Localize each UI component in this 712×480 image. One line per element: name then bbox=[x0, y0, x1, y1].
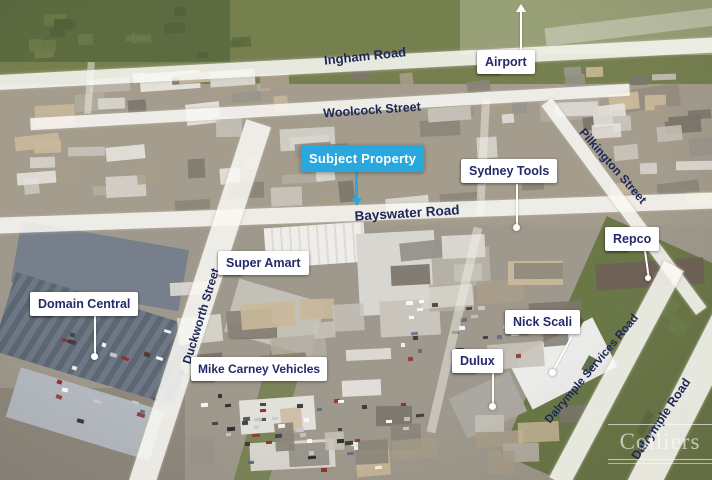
leader-dot-domain-central bbox=[91, 353, 98, 360]
photo-texture-patch bbox=[229, 39, 240, 47]
photo-texture-patch bbox=[332, 303, 365, 332]
photo-texture-patch bbox=[143, 352, 150, 358]
photo-texture-patch bbox=[654, 105, 669, 123]
photo-texture-patch bbox=[97, 98, 125, 110]
photo-texture-patch bbox=[126, 34, 146, 42]
photo-texture-patch bbox=[413, 336, 418, 340]
photo-texture-patch bbox=[390, 264, 430, 286]
photo-texture-patch bbox=[271, 186, 303, 206]
photo-texture-patch bbox=[374, 389, 430, 422]
poi-sydney-tools-label: Sydney Tools bbox=[461, 159, 557, 183]
photo-texture-patch bbox=[307, 439, 312, 443]
photo-texture-patch bbox=[665, 114, 702, 134]
photo-texture-patch bbox=[488, 451, 515, 474]
photo-texture-patch bbox=[254, 417, 262, 421]
photo-texture-patch bbox=[164, 23, 186, 34]
photo-texture-patch bbox=[613, 144, 638, 162]
photo-texture-patch bbox=[418, 349, 422, 353]
photo-texture-patch bbox=[15, 133, 60, 151]
leader-dot-dulux bbox=[489, 403, 496, 410]
photo-texture-patch bbox=[67, 339, 75, 345]
photo-texture-patch bbox=[375, 466, 382, 470]
photo-texture-patch bbox=[249, 439, 335, 471]
photo-texture-patch bbox=[416, 414, 424, 418]
photo-texture-patch bbox=[300, 298, 334, 319]
photo-texture-patch bbox=[156, 357, 164, 362]
photo-texture-patch bbox=[140, 409, 146, 414]
poi-super-amart-label: Super Amart bbox=[218, 251, 309, 275]
photo-texture-patch bbox=[254, 425, 259, 429]
photo-texture-patch bbox=[77, 419, 84, 424]
leader-line-domain-central bbox=[94, 316, 96, 356]
photo-texture-patch bbox=[39, 39, 57, 52]
photo-texture-patch bbox=[243, 417, 250, 422]
photo-texture-patch bbox=[338, 428, 342, 431]
photo-texture-patch bbox=[69, 333, 75, 338]
photo-texture-patch bbox=[189, 437, 213, 465]
photo-texture-patch bbox=[225, 309, 316, 480]
photo-texture-patch bbox=[23, 177, 40, 194]
road-band-minor-3 bbox=[426, 227, 482, 434]
photo-texture-patch bbox=[502, 443, 539, 463]
photo-texture-patch bbox=[257, 82, 271, 92]
photo-texture-patch bbox=[639, 163, 656, 175]
photo-texture-patch bbox=[564, 66, 581, 75]
photo-texture-patch bbox=[514, 263, 563, 280]
leader-line-dulux bbox=[492, 373, 494, 405]
photo-texture-patch bbox=[417, 307, 423, 311]
photo-texture-patch bbox=[188, 159, 206, 179]
photo-texture-patch bbox=[56, 379, 62, 384]
photo-texture-patch bbox=[471, 315, 478, 319]
photo-texture-patch bbox=[687, 109, 710, 120]
colliers-logo-text: Colliers bbox=[620, 429, 701, 455]
photo-texture-patch bbox=[483, 336, 488, 339]
photo-texture-patch bbox=[68, 146, 105, 156]
photo-texture-patch bbox=[245, 442, 250, 446]
photo-texture-patch bbox=[645, 94, 667, 110]
photo-texture-patch bbox=[308, 456, 316, 460]
photo-texture-patch bbox=[434, 107, 473, 118]
photo-texture-patch bbox=[197, 51, 208, 58]
photo-texture-patch bbox=[406, 301, 414, 305]
photo-texture-patch bbox=[516, 354, 521, 358]
photo-texture-patch bbox=[121, 356, 130, 362]
photo-texture-patch bbox=[224, 279, 326, 357]
photo-texture-patch bbox=[347, 451, 355, 455]
photo-texture-patch bbox=[200, 403, 207, 407]
photo-texture-patch bbox=[689, 135, 712, 156]
photo-texture-patch bbox=[110, 352, 118, 358]
photo-texture-patch bbox=[419, 300, 425, 304]
photo-texture-patch bbox=[50, 27, 65, 37]
photo-texture-patch bbox=[226, 432, 232, 436]
photo-texture-patch bbox=[30, 157, 55, 168]
photo-texture-patch bbox=[401, 403, 406, 406]
photo-texture-patch bbox=[174, 7, 186, 17]
photo-texture-patch bbox=[132, 400, 139, 405]
photo-texture-patch bbox=[300, 433, 306, 438]
photo-texture-patch bbox=[259, 418, 267, 422]
poi-repco-label: Repco bbox=[605, 227, 659, 251]
photo-texture-patch bbox=[362, 404, 367, 408]
photo-texture-patch bbox=[309, 451, 314, 455]
photo-texture-patch bbox=[154, 342, 160, 347]
photo-texture-patch bbox=[337, 439, 344, 443]
photo-texture-patch bbox=[71, 365, 76, 370]
photo-texture-patch bbox=[33, 139, 61, 153]
photo-texture-patch bbox=[304, 418, 309, 422]
photo-texture-patch bbox=[252, 434, 260, 438]
photo-texture-patch bbox=[338, 400, 344, 403]
photo-texture-patch bbox=[321, 468, 327, 472]
photo-texture-patch bbox=[399, 72, 413, 86]
photo-texture-patch bbox=[55, 394, 62, 400]
photo-texture-patch bbox=[137, 165, 160, 184]
photo-texture-patch bbox=[240, 301, 296, 330]
photo-texture-patch bbox=[630, 76, 647, 85]
photo-texture-patch bbox=[175, 199, 210, 211]
photo-texture-patch bbox=[62, 338, 70, 343]
photo-texture-patch bbox=[232, 91, 261, 103]
photo-texture-patch bbox=[591, 103, 626, 128]
poi-dulux-label: Dulux bbox=[452, 349, 503, 373]
photo-texture-patch bbox=[376, 406, 412, 426]
photo-texture-patch bbox=[0, 0, 230, 62]
photo-texture-patch bbox=[346, 348, 391, 361]
leader-dot-nick-scali bbox=[549, 369, 556, 376]
photo-texture-patch bbox=[247, 461, 254, 465]
photo-texture-patch bbox=[401, 343, 405, 347]
photo-texture-patch bbox=[163, 329, 171, 334]
photo-texture-patch bbox=[420, 119, 461, 137]
photo-texture-patch bbox=[260, 403, 267, 406]
photo-texture-patch bbox=[497, 335, 502, 339]
photo-texture-patch bbox=[225, 404, 232, 408]
photo-texture-patch bbox=[143, 352, 150, 358]
photo-texture-patch bbox=[210, 86, 241, 97]
photo-texture-patch bbox=[409, 316, 414, 320]
photo-texture-patch bbox=[17, 170, 57, 185]
photo-texture-patch bbox=[411, 332, 418, 336]
photo-texture-patch bbox=[29, 39, 43, 52]
photo-texture-patch bbox=[391, 438, 437, 461]
photo-texture-patch bbox=[501, 114, 514, 124]
poi-airport-label: Airport bbox=[477, 50, 535, 74]
leader-line-nick-scali bbox=[552, 334, 573, 372]
photo-texture-patch bbox=[136, 412, 145, 418]
photo-texture-patch bbox=[334, 398, 340, 402]
photo-texture-patch bbox=[676, 161, 712, 170]
photo-texture-patch bbox=[101, 343, 106, 348]
photo-texture-patch bbox=[385, 420, 391, 423]
photo-texture-patch bbox=[355, 439, 360, 443]
photo-texture-patch bbox=[656, 125, 683, 142]
subject-property-badge: Subject Property bbox=[301, 145, 424, 172]
photo-texture-patch bbox=[404, 416, 410, 420]
photo-texture-patch bbox=[475, 415, 504, 432]
aerial-map: Ingham Road Woolcock Street Bayswater Ro… bbox=[0, 0, 712, 480]
photo-texture-patch bbox=[354, 440, 388, 465]
photo-texture-patch bbox=[105, 144, 146, 162]
photo-texture-patch bbox=[266, 441, 272, 444]
photo-texture-patch bbox=[351, 442, 358, 446]
photo-texture-patch bbox=[379, 298, 441, 337]
photo-texture-patch bbox=[667, 315, 690, 338]
photo-texture-patch bbox=[613, 116, 632, 132]
subject-property-arrowhead bbox=[352, 198, 362, 206]
photo-texture-patch bbox=[297, 404, 303, 408]
photo-texture-patch bbox=[256, 418, 260, 421]
photo-texture-patch bbox=[476, 278, 524, 303]
poi-domain-central-label: Domain Central bbox=[30, 292, 138, 316]
photo-texture-patch bbox=[478, 305, 485, 310]
photo-texture-patch bbox=[78, 33, 93, 44]
road-band-minor-1 bbox=[476, 100, 490, 215]
photo-texture-patch bbox=[54, 18, 73, 30]
photo-texture-patch bbox=[355, 448, 391, 476]
leader-dot-repco bbox=[645, 275, 651, 281]
photo-texture-patch bbox=[62, 20, 76, 28]
photo-texture-patch bbox=[260, 408, 267, 412]
photo-texture-patch bbox=[271, 417, 277, 421]
photo-texture-patch bbox=[218, 393, 223, 397]
photo-texture-patch bbox=[449, 371, 527, 439]
photo-texture-patch bbox=[131, 32, 151, 45]
photo-texture-patch bbox=[274, 422, 295, 451]
photo-texture-patch bbox=[356, 230, 438, 316]
photo-texture-patch bbox=[345, 441, 353, 445]
photo-texture-patch bbox=[476, 431, 524, 449]
poi-mike-carney-vehicles-label: Mike Carney Vehicles bbox=[191, 357, 327, 381]
photo-texture-patch bbox=[275, 434, 282, 438]
photo-texture-patch bbox=[239, 395, 316, 434]
photo-texture-patch bbox=[93, 186, 108, 196]
photo-texture-patch bbox=[152, 50, 168, 62]
photo-texture-patch bbox=[39, 165, 78, 184]
poi-nick-scali-label: Nick Scali bbox=[505, 310, 580, 334]
photo-texture-patch bbox=[33, 48, 54, 58]
photo-texture-patch bbox=[296, 427, 304, 431]
photo-texture-patch bbox=[93, 399, 102, 405]
photo-texture-patch bbox=[466, 307, 472, 311]
photo-texture-patch bbox=[399, 239, 451, 262]
photo-texture-patch bbox=[62, 387, 69, 392]
photo-texture-patch bbox=[227, 427, 235, 431]
leader-dot-sydney-tools bbox=[513, 224, 520, 231]
photo-texture-patch bbox=[354, 446, 359, 450]
photo-texture-patch bbox=[106, 175, 147, 198]
photo-texture-patch bbox=[226, 309, 274, 339]
photo-texture-patch bbox=[585, 67, 602, 77]
leader-line-airport bbox=[520, 11, 522, 51]
photo-texture-patch bbox=[652, 74, 676, 81]
subject-property-pointer bbox=[355, 172, 358, 199]
photo-texture-patch bbox=[44, 13, 68, 25]
photo-texture-patch bbox=[135, 26, 152, 36]
photo-texture-patch bbox=[232, 37, 252, 48]
photo-texture-patch bbox=[432, 303, 438, 307]
photo-texture-patch bbox=[317, 407, 322, 410]
photo-texture-patch bbox=[391, 423, 421, 450]
photo-texture-patch bbox=[48, 45, 68, 59]
photo-texture-patch bbox=[403, 427, 409, 431]
photo-texture-patch bbox=[230, 324, 277, 340]
leader-line-sydney-tools bbox=[516, 184, 518, 226]
photo-texture-patch bbox=[280, 407, 303, 434]
photo-texture-patch bbox=[508, 261, 563, 286]
photo-texture-patch bbox=[407, 357, 412, 361]
photo-texture-patch bbox=[241, 420, 247, 424]
photo-texture-patch bbox=[427, 105, 471, 122]
photo-texture-patch bbox=[342, 379, 382, 397]
photo-texture-patch bbox=[313, 321, 336, 339]
colliers-logo: Colliers bbox=[608, 424, 712, 460]
photo-texture-patch bbox=[212, 421, 218, 425]
photo-texture-patch bbox=[288, 442, 330, 468]
photo-texture-patch bbox=[282, 173, 323, 184]
photo-texture-patch bbox=[278, 423, 286, 428]
photo-texture-patch bbox=[325, 432, 345, 451]
